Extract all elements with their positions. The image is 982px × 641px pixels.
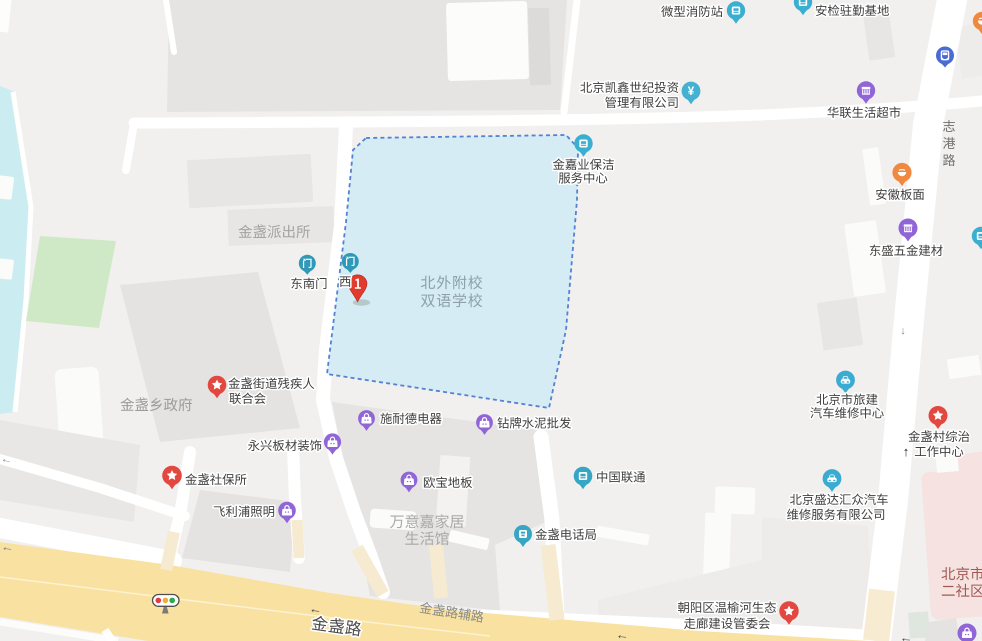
- svg-text:飞利浦照明: 飞利浦照明: [213, 502, 275, 520]
- svg-text:安检驻勤基地: 安检驻勤基地: [815, 1, 889, 19]
- svg-text:维修服务有限公司: 维修服务有限公司: [786, 505, 885, 523]
- svg-text:联合会: 联合会: [229, 389, 266, 407]
- svg-text:←: ←: [0, 535, 16, 556]
- svg-text:华联生活超市: 华联生活超市: [827, 103, 901, 121]
- svg-text:永兴板材装饰: 永兴板材装饰: [248, 436, 322, 454]
- svg-text:汽车维修中心: 汽车维修中心: [810, 404, 884, 422]
- svg-text:门: 门: [302, 255, 312, 270]
- svg-text:←: ←: [615, 623, 630, 641]
- svg-text:¥: ¥: [688, 83, 695, 99]
- svg-text:西: 西: [339, 272, 351, 290]
- svg-text:金盏乡政府: 金盏乡政府: [120, 394, 193, 415]
- svg-text:二社区: 二社区: [941, 580, 982, 601]
- svg-text:金盏派出所: 金盏派出所: [238, 221, 311, 242]
- svg-text:管理有限公司: 管理有限公司: [605, 93, 679, 111]
- svg-text:路: 路: [942, 150, 955, 169]
- svg-text:钻牌水泥批发: 钻牌水泥批发: [497, 414, 571, 432]
- svg-text:工作中心: 工作中心: [914, 442, 964, 460]
- svg-text:↓: ↓: [900, 322, 906, 338]
- svg-text:金盏社保所: 金盏社保所: [185, 470, 247, 488]
- svg-text:中国联通: 中国联通: [596, 468, 646, 486]
- svg-text:走廊建设管委会: 走廊建设管委会: [684, 614, 771, 632]
- svg-text:↑: ↑: [903, 441, 910, 460]
- svg-text:生活馆: 生活馆: [404, 528, 449, 549]
- svg-text:欧宝地板: 欧宝地板: [423, 473, 473, 491]
- svg-text:东盛五金建材: 东盛五金建材: [869, 241, 943, 259]
- svg-text:双语学校: 双语学校: [420, 290, 483, 311]
- svg-text:门: 门: [345, 253, 355, 268]
- svg-text:金盏电话局: 金盏电话局: [535, 525, 597, 543]
- svg-text:1: 1: [354, 273, 362, 293]
- svg-text:←: ←: [899, 627, 913, 641]
- svg-text:施耐德电器: 施耐德电器: [380, 409, 443, 427]
- svg-text:←: ←: [308, 597, 324, 618]
- svg-text:微型消防站: 微型消防站: [661, 2, 723, 20]
- svg-text:安徽板面: 安徽板面: [875, 185, 925, 203]
- svg-text:东南门: 东南门: [290, 274, 327, 292]
- svg-text:服务中心: 服务中心: [558, 169, 608, 187]
